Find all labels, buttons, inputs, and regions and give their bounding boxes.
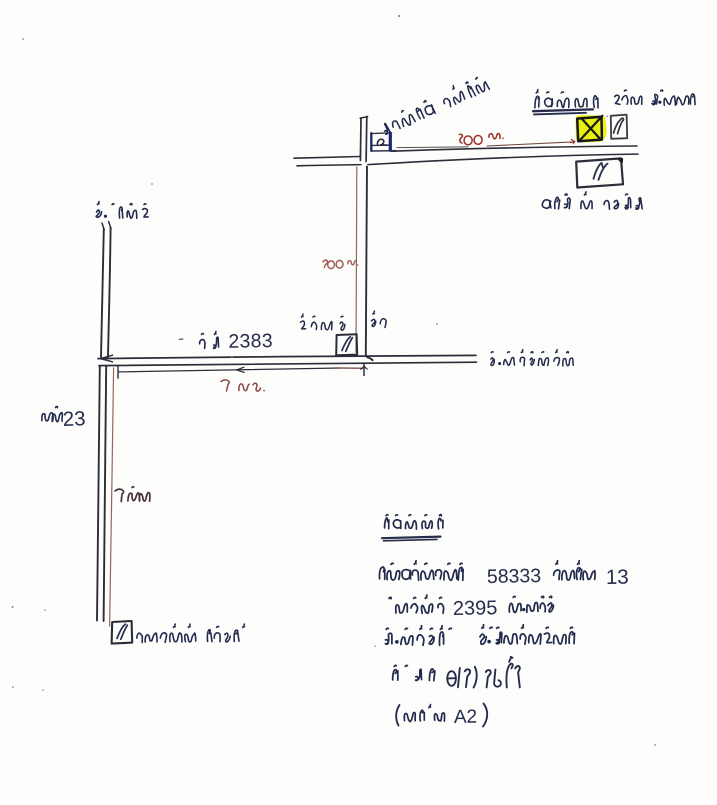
svg-text:2395: 2395 [453, 597, 498, 620]
svg-text:2383: 2383 [228, 330, 273, 353]
svg-text:A2: A2 [454, 707, 478, 728]
svg-text:13: 13 [606, 566, 629, 589]
svg-text:58333: 58333 [487, 565, 542, 588]
svg-text:23: 23 [62, 407, 86, 431]
